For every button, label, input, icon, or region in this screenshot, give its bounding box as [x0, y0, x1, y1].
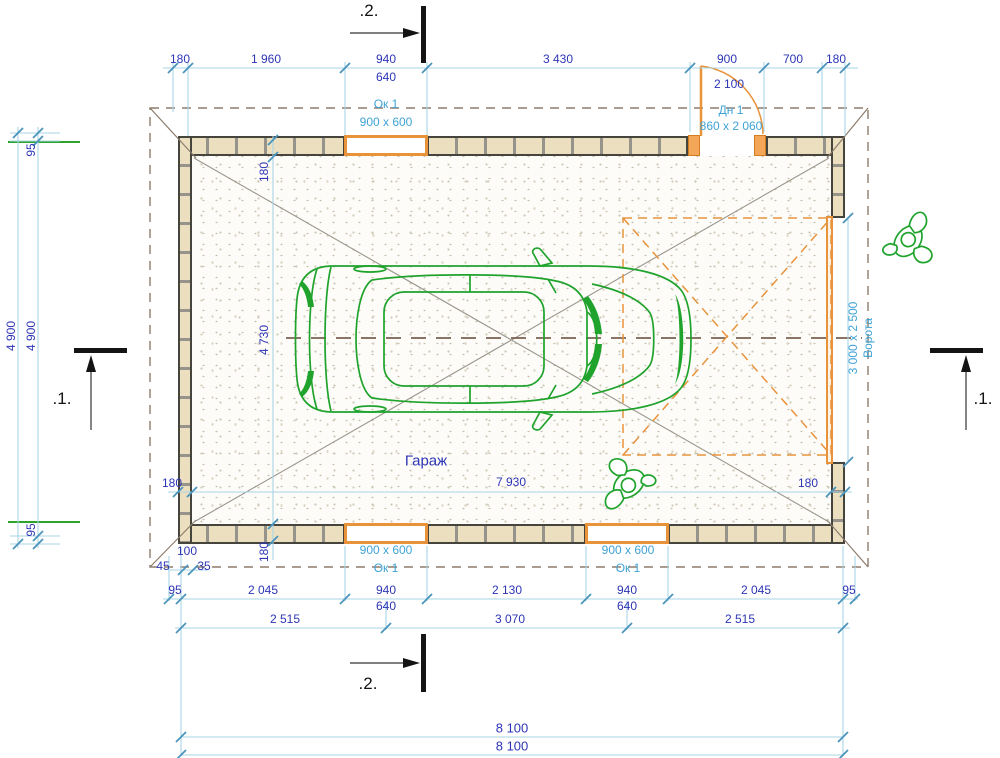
dim-label: 45 — [156, 559, 169, 573]
ground-mark — [8, 142, 80, 522]
dim-label: 100 — [177, 544, 197, 558]
window-top — [344, 135, 428, 156]
wall-top-segment — [427, 136, 688, 156]
section-marker-left — [74, 348, 127, 430]
window-tag: Ок 1 — [374, 561, 399, 575]
dim-label: 3 070 — [495, 612, 525, 626]
dim-label: 940 — [376, 583, 396, 597]
window-tag: Ок 1 — [374, 97, 399, 111]
dim-label: 4 900 — [24, 321, 38, 351]
dim-label: 2 130 — [492, 583, 522, 597]
floor-plan-canvas: .2. .2. .1. .1. 180 1 960 940 3 430 900 … — [0, 0, 1000, 758]
gate-label: Ворота — [861, 318, 875, 358]
dim-label: 4 730 — [257, 325, 271, 355]
section-label-bottom: .2. — [359, 674, 378, 694]
dim-label: 2 045 — [741, 583, 771, 597]
wall-right-segment — [831, 462, 845, 544]
dim-label: 180 — [170, 52, 190, 66]
wall-bottom-segment — [668, 524, 845, 544]
door-tag: Дн 1 — [719, 103, 744, 117]
wall-bottom-segment — [427, 524, 586, 544]
room-name: Гараж — [405, 453, 447, 470]
dim-label: 900 — [717, 52, 737, 66]
dim-label: 1 960 — [251, 52, 281, 66]
garage-floor — [192, 156, 831, 524]
dim-label: 35 — [197, 559, 210, 573]
dim-label: 2 045 — [248, 583, 278, 597]
dim-label: 640 — [376, 70, 396, 84]
gate-size: 3 000 x 2 500 — [846, 302, 860, 375]
dim-label-overall: 8 100 — [496, 721, 529, 736]
window-size: 900 x 600 — [602, 543, 655, 557]
dim-label: 700 — [783, 52, 803, 66]
wall-top-segment — [178, 136, 345, 156]
wall-right-segment — [831, 136, 845, 218]
dim-label-door-height: 2 100 — [714, 77, 744, 91]
dim-label: 180 — [826, 52, 846, 66]
door-size: 860 x 2 060 — [700, 119, 763, 133]
section-label-top: .2. — [360, 1, 379, 21]
dim-label: 95 — [168, 583, 181, 597]
dim-label: 940 — [617, 583, 637, 597]
door-jamb-left — [688, 135, 700, 156]
dim-label: 640 — [617, 599, 637, 613]
person-figure-outside — [876, 210, 948, 280]
section-label-left: .1. — [53, 389, 72, 409]
dim-label: 3 430 — [543, 52, 573, 66]
dim-label: 180 — [798, 476, 818, 490]
dim-label: 2 515 — [725, 612, 755, 626]
dim-label: 640 — [376, 599, 396, 613]
door-jamb-right — [754, 135, 766, 156]
dim-label: 940 — [376, 52, 396, 66]
window-size: 900 x 600 — [360, 115, 413, 129]
dim-label-overall: 8 100 — [496, 739, 529, 754]
dim-label: 7 930 — [496, 475, 526, 489]
dim-label: 95 — [24, 523, 38, 536]
dim-label: 180 — [162, 476, 182, 490]
gate-leaf — [826, 216, 833, 464]
window-bottom-1 — [344, 523, 428, 544]
window-bottom-2 — [585, 523, 669, 544]
section-label-right: .1. — [974, 389, 993, 409]
dim-label: 2 515 — [270, 612, 300, 626]
dim-label: 180 — [257, 542, 271, 562]
window-size: 900 x 600 — [360, 543, 413, 557]
window-tag: Ок 1 — [616, 561, 641, 575]
dim-label: 4 900 — [4, 321, 18, 351]
dim-label: 180 — [257, 162, 271, 182]
dim-label: 95 — [24, 143, 38, 156]
dim-label: 95 — [842, 583, 855, 597]
